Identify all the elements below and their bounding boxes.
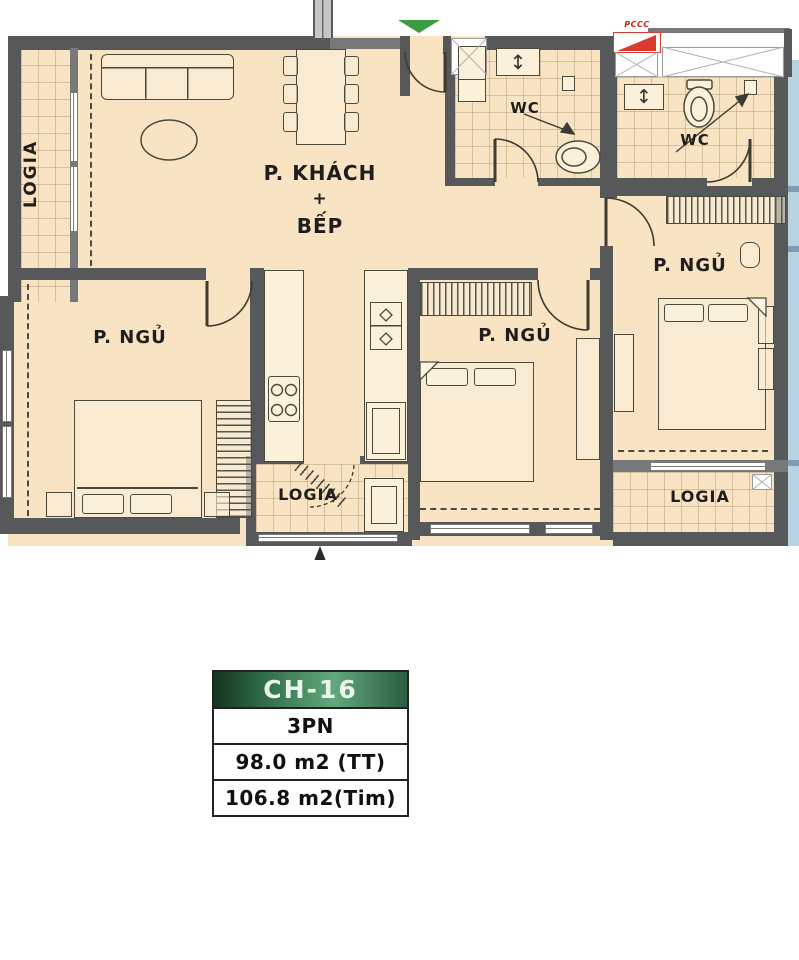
living-room-label-line3: BẾP [245, 215, 395, 237]
card-connector-arrow [314, 546, 326, 560]
wc-right-label: WC [670, 132, 720, 149]
bedroom-left-label: P. NGỦ [60, 328, 200, 348]
area-usable-row: 98.0 m2 (TT) [214, 743, 407, 779]
bedroom-count-row: 3PN [214, 707, 407, 743]
unit-info-card: CH-16 3PN 98.0 m2 (TT) 106.8 m2(Tim) [212, 670, 409, 817]
toilet [556, 80, 714, 173]
living-room-label: P. KHÁCH + BẾP [245, 162, 395, 237]
entrance-arrow-icon [398, 20, 440, 33]
bedroom-right-label: P. NGỦ [630, 256, 750, 276]
door-arcs [207, 52, 750, 507]
living-room-label-line1: P. KHÁCH [245, 162, 395, 184]
area-gross-row: 106.8 m2(Tim) [214, 779, 407, 815]
bedroom-left-door-arc [207, 281, 252, 326]
pccc-icon [617, 35, 656, 51]
logia-right-label: LOGIA [645, 488, 755, 506]
logia-center-label: LOGIA [258, 486, 358, 504]
rug [141, 120, 197, 160]
wc-left-door-arc [495, 139, 538, 182]
bedroom-middle-label: P. NGỦ [455, 326, 575, 346]
floor-plan-page: ↕ ↕ [0, 0, 799, 960]
unit-code-header: CH-16 [214, 672, 407, 707]
plan-overlay [0, 0, 799, 560]
bedroom-middle-door-arc [538, 280, 588, 330]
living-room-label-line2: + [245, 190, 395, 209]
wc-left-label: WC [500, 100, 550, 117]
stove-burners [272, 385, 297, 416]
sink-basin-symbols [380, 309, 392, 345]
logia-left-label: LOGIA [22, 118, 58, 230]
entrance-door-arc [405, 52, 445, 92]
bedroom-right-door-arc [606, 198, 654, 246]
pccc-label: PCCC [613, 21, 661, 30]
